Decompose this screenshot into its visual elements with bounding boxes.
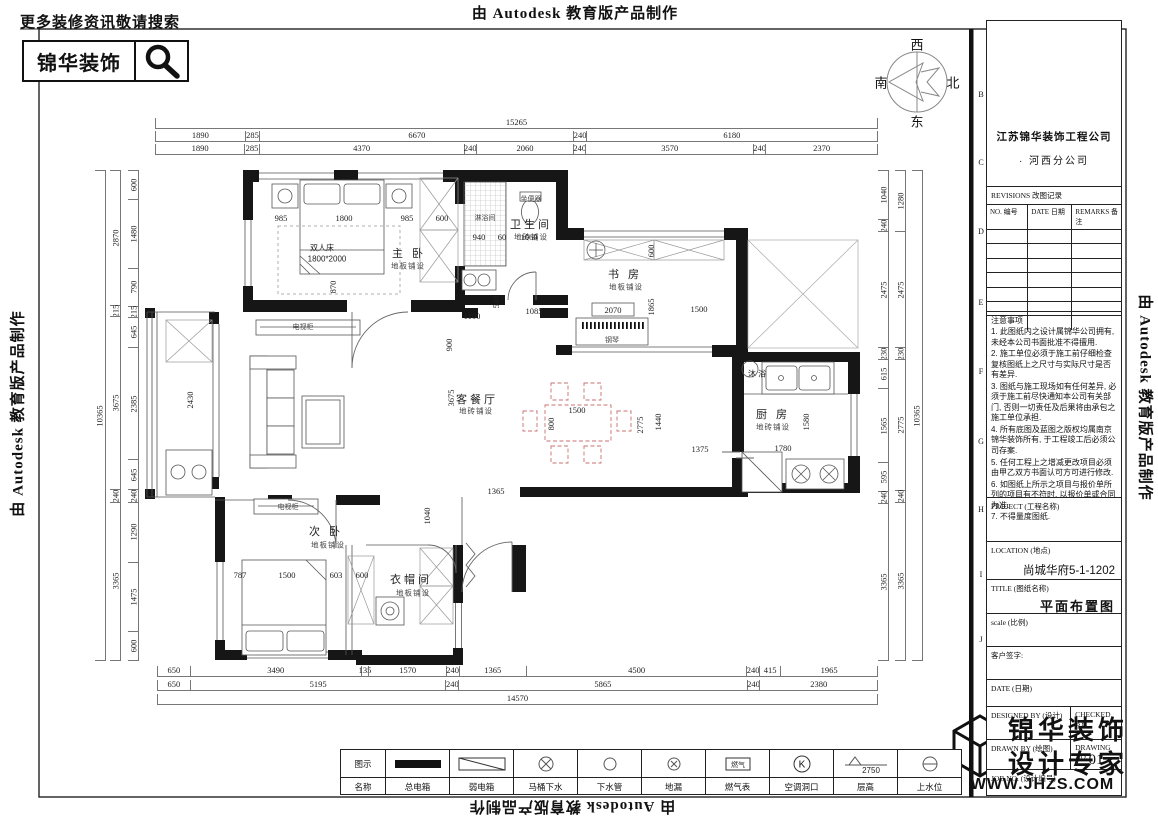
plan-label: 地板铺设: [391, 261, 425, 272]
date-section: DATE (日期): [987, 679, 1121, 706]
dim-segment: 1965: [780, 666, 877, 677]
revisions-col-remarks: REMARKS 备注: [1071, 205, 1121, 229]
ceiling-height-icon: 2750: [833, 750, 897, 777]
legend-symbol-row-label: 图示: [341, 750, 385, 777]
dim-segment: 15265: [155, 118, 877, 129]
autodesk-watermark-top: 由 Autodesk 教育版产品制作: [445, 2, 705, 23]
plan-label: 双人床: [310, 243, 334, 254]
water-supply-icon: [897, 750, 961, 777]
plan-dimension: 1440: [653, 414, 663, 431]
project-section: PROJECT (工程名称): [987, 497, 1121, 541]
client-sign-section: 客户签字:: [987, 646, 1121, 679]
compass-west-label: 西: [910, 35, 923, 54]
plan-label: 电视柜: [278, 502, 299, 512]
dim-segment: 230: [878, 347, 889, 359]
dim-segment: 645: [128, 459, 139, 490]
dim-segment: 215: [128, 306, 139, 317]
dim-segment: 2370: [765, 144, 877, 155]
autodesk-watermark-right: 由 Autodesk 教育版产品制作: [1136, 283, 1157, 513]
dim-segment: 2060: [476, 144, 573, 155]
plan-dimension: 1060: [521, 232, 538, 242]
revisions-header: NO. 编号 DATE 日期 REMARKS 备注: [987, 204, 1121, 229]
main-electric-box-icon: [385, 750, 449, 777]
plan-label: 卫生间: [510, 216, 552, 232]
dim-col-right-detail: 1040240247523061515655952403365: [878, 170, 889, 661]
dim-segment: 650: [157, 666, 190, 677]
compass-north-label: 北: [946, 73, 959, 92]
plan-label: 衣帽间: [390, 571, 432, 587]
plan-dimension: 1500: [279, 570, 296, 580]
plan-dimension: 1800: [336, 213, 353, 223]
scale-section: scale (比例): [987, 613, 1121, 646]
plan-label: 地板铺设: [311, 540, 345, 551]
plan-label: 书 房: [608, 266, 642, 282]
dim-segment: 2380: [759, 680, 877, 691]
plan-dimension: 940: [473, 232, 486, 242]
plan-label: 主 卧: [392, 245, 426, 261]
dim-row-bottom-mid: 650519524058652402380: [157, 680, 878, 691]
brand-search-box: 锦华装饰: [22, 40, 189, 82]
dim-segment: 645: [128, 317, 139, 348]
dim-segment: 240: [464, 144, 476, 155]
plan-dimension: 1580: [801, 414, 811, 431]
title-block: 江苏锦华装饰工程公司 · 河西分公司 REVISIONS 改图记录 NO. 编号…: [986, 20, 1122, 796]
plan-label: 坐便器: [521, 194, 542, 204]
dim-segment: 3365: [110, 502, 121, 660]
dim-segment: 4370: [259, 144, 464, 155]
revision-empty-row: [987, 258, 1121, 272]
dim-segment: 3365: [895, 502, 906, 660]
dim-segment: 1040: [878, 170, 889, 219]
legend-name: 层高: [833, 777, 897, 795]
svg-text:K: K: [798, 759, 805, 770]
dim-segment: 595: [878, 462, 889, 491]
drawing-sheet: 由 Autodesk 教育版产品制作 由 Autodesk 教育版产品制作 由 …: [0, 0, 1158, 817]
plan-dimension: 1040: [422, 508, 432, 525]
footer-brand-line1: 锦华装饰: [1008, 710, 1128, 747]
dim-segment: 1565: [878, 388, 889, 462]
dim-row-bottom-detail: 65034901351570240136545002404151965: [157, 666, 878, 677]
dim-segment: 3570: [585, 144, 753, 155]
location-label: LOCATION (地点): [987, 542, 1121, 556]
plan-dimension: 600: [646, 245, 656, 258]
furniture: [166, 180, 844, 655]
company-branch: · 河西分公司: [987, 152, 1121, 167]
legend-name-row-label: 名称: [341, 777, 385, 795]
legend-table: 图示 燃气 K 2750 名称 总电箱 弱电箱 马桶下水 下水管 地漏 燃气表 …: [340, 749, 962, 795]
footer-brand-url: WWW.JHZS.COM: [950, 776, 1135, 794]
plan-dimension: 1500: [569, 405, 586, 415]
dim-segment: 240: [110, 489, 121, 501]
legend-name: 地漏: [641, 777, 705, 795]
legend-name: 总电箱: [385, 777, 449, 795]
plan-label: 地板铺设: [609, 282, 643, 293]
dim-col-left-detail: 6001480790215645238564524012901475600: [128, 170, 139, 661]
plan-dimension: 3675: [446, 390, 456, 407]
dim-col-right-total: 10365: [912, 170, 923, 661]
plan-dimension: 600: [356, 570, 369, 580]
note-line: 3. 图纸与施工现场如有任何差异, 必须于施工前尽快通知本公司有关部门, 否则一…: [991, 382, 1118, 424]
dim-segment: 5865: [458, 680, 746, 691]
notes-section: 注意事项 1. 此图纸内之设计属锦华公司拥有, 未经本公司书面批准不得擅用.2.…: [987, 311, 1121, 497]
revision-empty-row: [987, 229, 1121, 243]
titleblock-heavy-divider: [969, 29, 974, 797]
plan-dimension: 1865: [646, 299, 656, 316]
weak-electric-box-icon: [449, 750, 513, 777]
dim-segment: 215: [110, 305, 121, 316]
dim-segment: 415: [759, 666, 780, 677]
dim-segment: 1290: [128, 502, 139, 563]
plan-dimension: 870: [328, 281, 338, 294]
plan-label: 地砖铺设: [459, 406, 493, 417]
dim-segment: 6670: [259, 131, 573, 142]
plan-dimension: 985: [275, 213, 288, 223]
revision-empty-row: [987, 272, 1121, 286]
legend-name: 空调洞口: [769, 777, 833, 795]
plan-label: 地板铺设: [396, 588, 430, 599]
dim-segment: 240: [753, 144, 765, 155]
project-label: PROJECT (工程名称): [987, 498, 1121, 512]
revisions-col-no: NO. 编号: [987, 205, 1027, 229]
plan-dimension: 800: [546, 418, 556, 431]
plan-dimension: 2430: [185, 392, 195, 409]
dim-segment: 240: [878, 491, 889, 503]
svg-text:燃气: 燃气: [731, 760, 745, 769]
plan-dimension: 1375: [692, 444, 709, 454]
plan-label: 1800*2000: [308, 255, 347, 264]
plan-label: 钢琴: [605, 335, 619, 345]
dim-row-bottom-total: 14570: [157, 694, 878, 705]
dim-segment: 600: [128, 631, 139, 660]
company-name: 江苏锦华装饰工程公司: [987, 129, 1121, 144]
dim-segment: 240: [895, 490, 906, 502]
dim-segment: 1475: [128, 562, 139, 631]
dim-segment: 3490: [190, 666, 361, 677]
plan-dimension: 1100: [464, 311, 481, 321]
note-line: 5. 任何工程上之增减更改项目必须由甲乙双方书面认可方可进行修改.: [991, 458, 1118, 479]
compass-east-label: 东: [910, 112, 923, 131]
plan-dimension: 2070: [605, 305, 622, 315]
dim-col-left-total: 10365: [95, 170, 106, 661]
note-line: 1. 此图纸内之设计属锦华公司拥有, 未经本公司书面批准不得擅用.: [991, 327, 1118, 348]
plan-label: 厨 房: [756, 406, 790, 422]
brand-name: 锦华装饰: [24, 42, 136, 80]
dim-segment: 240: [446, 666, 459, 677]
title-section: TITLE (图纸名称) 平面布置图: [987, 579, 1121, 613]
note-line: 4. 所有底图及蓝图之版权均属南京锦华装饰所有, 于工程竣工后必须公司存案.: [991, 425, 1118, 457]
dim-segment: 1365: [459, 666, 527, 677]
dim-segment: 3675: [110, 316, 121, 489]
revisions-col-date: DATE 日期: [1027, 205, 1071, 229]
gas-meter-icon: 燃气: [705, 750, 769, 777]
door-arcs: [288, 272, 754, 592]
dim-segment: 230: [895, 347, 906, 359]
dim-segment: 240: [573, 131, 585, 142]
ac-opening-icon: K: [769, 750, 833, 777]
plan-dimension: 1780: [775, 443, 792, 453]
plan-label: 沐 浴: [748, 369, 766, 380]
toilet-drain-icon: [513, 750, 577, 777]
dim-segment: 240: [128, 489, 139, 501]
dim-segment: 3365: [878, 503, 889, 660]
dim-segment: 1480: [128, 199, 139, 268]
dim-segment: 2870: [110, 170, 121, 305]
legend-name: 燃气表: [705, 777, 769, 795]
dim-row-top-detail: 18902854370240206024035702402370: [155, 144, 878, 155]
plan-label: 地砖铺设: [756, 422, 790, 433]
plan-dimension: 985: [401, 213, 414, 223]
dim-segment: 1890: [155, 144, 244, 155]
plan-dimension: 60: [498, 232, 507, 242]
revision-empty-row: [987, 243, 1121, 257]
dim-row-top-total: 15265: [155, 118, 878, 129]
dim-segment: 2775: [895, 359, 906, 490]
dim-segment: 6180: [586, 131, 877, 142]
plan-dimension: 787: [234, 570, 247, 580]
dim-segment: 240: [878, 219, 889, 231]
drawing-title-label: TITLE (图纸名称): [987, 580, 1121, 594]
dim-segment: 2385: [128, 347, 139, 458]
revisions-section: REVISIONS 改图记录 NO. 编号 DATE 日期 REMARKS 备注: [987, 186, 1121, 311]
dim-segment: 135: [361, 666, 369, 677]
plan-dimension: 600: [436, 213, 449, 223]
dim-segment: 285: [244, 144, 258, 155]
client-sign-label: 客户签字:: [987, 647, 1121, 661]
plan-label: 次 卧: [309, 523, 343, 539]
dim-segment: 650: [157, 680, 190, 691]
dim-segment: 4500: [526, 666, 746, 677]
autodesk-watermark-bottom: 由 Autodesk 教育版产品制作: [442, 797, 702, 817]
dim-segment: 1570: [368, 666, 446, 677]
dining-set: [523, 383, 631, 463]
compass-south-label: 南: [874, 73, 887, 92]
search-icon: [136, 42, 187, 80]
dim-col-right-mid: 1280247523027752403365: [895, 170, 906, 661]
dim-row-top-mid: 189028566702406180: [155, 131, 878, 142]
legend-name: 下水管: [577, 777, 641, 795]
autodesk-watermark-left: 由 Autodesk 教育版产品制作: [7, 299, 28, 529]
plan-dimension: 540: [491, 296, 501, 309]
note-line: 2. 施工单位必须于施工前仔细检查复核图纸上之尺寸与实际尺寸是否有差异.: [991, 349, 1118, 381]
plan-dimension: 603: [330, 570, 343, 580]
date-label: DATE (日期): [987, 680, 1121, 694]
dim-segment: 14570: [157, 694, 877, 705]
dim-col-left-mid: 287021536752403365: [110, 170, 121, 661]
dim-segment: 600: [128, 170, 139, 199]
dim-segment: 1280: [895, 170, 906, 231]
plan-dimension: 1500: [691, 304, 708, 314]
scale-label: scale (比例): [987, 614, 1121, 628]
walls: [145, 170, 860, 665]
dim-segment: 10365: [912, 170, 923, 660]
plan-dimension: 1085: [526, 306, 543, 316]
dim-segment: 240: [445, 680, 458, 691]
notes-title: 注意事项: [987, 312, 1121, 326]
wardrobe-hatch: [166, 178, 858, 624]
legend-name: 马桶下水: [513, 777, 577, 795]
dim-segment: 10365: [95, 170, 106, 660]
dim-segment: 2475: [878, 231, 889, 347]
dim-segment: 790: [128, 268, 139, 306]
plan-dimension: 2775: [635, 417, 645, 434]
windows-and-lines: [147, 173, 857, 658]
location-value: 尚城华府5-1-1202: [1023, 562, 1115, 578]
dim-segment: 1890: [155, 131, 245, 142]
plan-label: 淋浴间: [475, 213, 496, 223]
plan-label: 电视柜: [293, 322, 314, 332]
search-hint-text: 更多装修资讯敬请搜索: [20, 11, 180, 32]
legend-name: 弱电箱: [449, 777, 513, 795]
dim-segment: 2475: [895, 231, 906, 348]
plan-dimension: 900: [444, 339, 454, 352]
drain-pipe-icon: [577, 750, 641, 777]
dim-segment: 615: [878, 359, 889, 389]
dim-segment: 5195: [190, 680, 446, 691]
dim-segment: 240: [573, 144, 585, 155]
plan-dimension: 1365: [488, 486, 505, 496]
floor-drain-icon: [641, 750, 705, 777]
revisions-title: REVISIONS 改图记录: [987, 187, 1121, 201]
dim-segment: 240: [747, 680, 760, 691]
revision-empty-row: [987, 287, 1121, 301]
svg-text:2750: 2750: [862, 766, 880, 774]
dim-segment: 285: [245, 131, 259, 142]
company-section: 江苏锦华装饰工程公司 · 河西分公司: [987, 21, 1121, 186]
notes-list: 1. 此图纸内之设计属锦华公司拥有, 未经本公司书面批准不得擅用.2. 施工单位…: [987, 326, 1121, 523]
dim-segment: 240: [746, 666, 759, 677]
location-section: LOCATION (地点) 尚城华府5-1-1202: [987, 541, 1121, 579]
compass-icon: [887, 52, 947, 112]
